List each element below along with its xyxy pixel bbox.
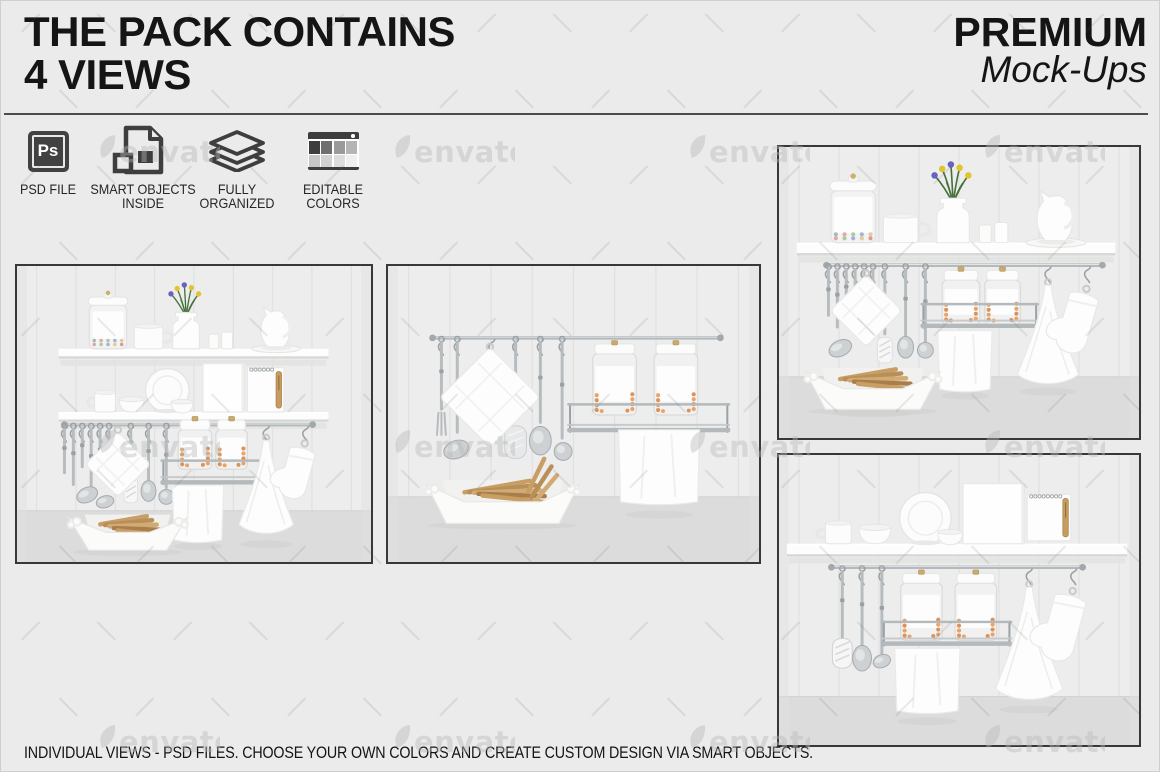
diagonal-mark xyxy=(629,13,648,32)
glass-jar xyxy=(942,267,980,325)
footer-caption: INDIVIDUAL VIEWS - PSD FILES. CHOOSE YOU… xyxy=(24,743,813,762)
jar-lid xyxy=(944,270,978,280)
mockup-scene-shelf-view xyxy=(779,147,1139,438)
jar-lid xyxy=(595,344,635,354)
color-swatches-icon xyxy=(308,132,359,170)
jar-lid xyxy=(987,270,1019,280)
diagonal-mark xyxy=(667,89,686,108)
diagonal-mark xyxy=(1047,89,1066,108)
blank-card xyxy=(203,364,245,412)
diagonal-mark xyxy=(439,697,458,716)
feature-editable-colors: EDITABLE COLORS xyxy=(267,124,399,210)
diagonal-mark xyxy=(895,89,914,108)
diagonal-mark xyxy=(705,621,724,640)
mockup-preview-3 xyxy=(777,145,1141,440)
hanging-towel xyxy=(895,648,960,713)
brand-block: PREMIUM Mock-Ups xyxy=(953,11,1147,89)
diagonal-mark xyxy=(249,621,268,640)
serving-spoon xyxy=(898,336,914,358)
diagonal-mark xyxy=(477,13,496,32)
floor xyxy=(779,697,1139,745)
serving-spoon xyxy=(853,645,872,671)
floor-shadow xyxy=(1000,706,1059,714)
title-line-2: 4 VIEWS xyxy=(24,53,455,96)
feature-label: EDITABLE COLORS xyxy=(274,182,393,210)
mockup-preview-4 xyxy=(777,453,1141,747)
diagonal-mark xyxy=(325,621,344,640)
diagonal-mark xyxy=(401,621,420,640)
spiral-notepad xyxy=(1027,494,1071,540)
blank-card xyxy=(963,484,1024,544)
diagonal-mark xyxy=(515,241,534,260)
diagonal-mark xyxy=(401,165,420,184)
color-swatch xyxy=(346,141,357,154)
jar-lid xyxy=(218,420,246,430)
floor-shadow xyxy=(1020,388,1075,396)
round-ladle xyxy=(554,443,572,461)
diagonal-mark xyxy=(1123,89,1142,108)
jar-label xyxy=(987,289,1018,315)
diagonal-mark xyxy=(477,165,496,184)
bowl xyxy=(859,524,891,544)
round-ladle xyxy=(159,489,174,504)
mockup-preview-2 xyxy=(386,264,761,564)
diagonal-mark xyxy=(59,697,78,716)
diagonal-mark xyxy=(743,89,762,108)
diagonal-mark xyxy=(363,697,382,716)
diagonal-mark xyxy=(97,621,116,640)
jar-label xyxy=(657,366,696,401)
diagonal-mark xyxy=(553,621,572,640)
glass-jar xyxy=(955,570,997,641)
glass-jar xyxy=(901,570,943,641)
diagonal-mark xyxy=(553,13,572,32)
jar-lid xyxy=(903,573,941,583)
diagonal-mark xyxy=(21,621,40,640)
bowl xyxy=(119,397,144,412)
serving-spoon xyxy=(529,426,551,455)
diagonal-mark xyxy=(59,241,78,260)
floor-shadow xyxy=(625,511,692,519)
mockup-scene-dishes-view xyxy=(779,455,1139,745)
diagonal-mark xyxy=(629,165,648,184)
grater xyxy=(877,337,892,363)
layers-stack-icon xyxy=(206,130,268,172)
diagonal-mark xyxy=(515,89,534,108)
diagonal-mark xyxy=(135,241,154,260)
diagonal-mark xyxy=(591,697,610,716)
glass-jar xyxy=(985,267,1021,325)
promo-page: { "header": { "title_line1": "THE PACK C… xyxy=(0,0,1160,772)
diagonal-mark xyxy=(629,621,648,640)
jar-label xyxy=(218,438,245,461)
page-title: THE PACK CONTAINS 4 VIEWS xyxy=(24,10,455,96)
spiral-notepad xyxy=(247,368,284,412)
jar-label xyxy=(595,366,634,401)
envato-watermark: envato xyxy=(391,132,515,177)
diagonal-mark xyxy=(553,165,572,184)
diagonal-mark xyxy=(667,697,686,716)
jar-lid xyxy=(180,420,210,430)
canister-jar xyxy=(830,173,876,242)
color-swatch xyxy=(321,141,332,154)
canister-jar xyxy=(88,291,127,349)
brand-mockups: Mock-Ups xyxy=(953,51,1147,89)
mockup-scene-front-view xyxy=(17,266,371,562)
bowl xyxy=(938,529,963,544)
diagonal-mark xyxy=(211,241,230,260)
bread-basket xyxy=(805,367,942,416)
diagonal-mark xyxy=(439,241,458,260)
diagonal-mark xyxy=(819,89,838,108)
title-line-1: THE PACK CONTAINS xyxy=(24,10,455,53)
jar-label xyxy=(945,289,978,315)
diagonal-mark xyxy=(591,241,610,260)
hanging-towel xyxy=(619,430,700,505)
photoshop-ps-glyph: Ps xyxy=(32,135,65,168)
slotted-spatula xyxy=(505,426,527,459)
diagonal-mark xyxy=(287,241,306,260)
diagonal-mark xyxy=(135,697,154,716)
floor-shadow xyxy=(898,717,957,725)
hanging-towel xyxy=(172,485,223,543)
floor-shadow xyxy=(174,542,221,550)
bowl xyxy=(171,400,193,413)
jar-lid xyxy=(656,344,696,354)
diagonal-mark xyxy=(363,241,382,260)
mockup-scene-closeup-view xyxy=(388,266,759,562)
diagonal-mark xyxy=(857,13,876,32)
serving-spoon xyxy=(141,481,156,502)
slotted-spatula xyxy=(832,638,852,668)
smart-objects-icon xyxy=(111,125,175,177)
color-swatch xyxy=(309,141,320,154)
jar-label xyxy=(181,438,210,461)
diagonal-mark xyxy=(515,697,534,716)
color-swatch xyxy=(334,141,345,154)
floor-shadow xyxy=(240,540,291,548)
diagonal-mark xyxy=(743,241,762,260)
jar-lid xyxy=(957,573,995,583)
diagonal-mark xyxy=(667,241,686,260)
diagonal-mark xyxy=(477,621,496,640)
diagonal-mark xyxy=(173,621,192,640)
header-divider xyxy=(4,113,1148,115)
palette-titlebar xyxy=(308,132,359,139)
floor-shadow xyxy=(941,392,988,400)
diagonal-mark xyxy=(287,697,306,716)
diagonal-mark xyxy=(211,697,230,716)
hanging-towel xyxy=(938,330,992,391)
diagonal-mark xyxy=(705,13,724,32)
diagonal-mark xyxy=(781,13,800,32)
diagonal-mark xyxy=(971,89,990,108)
diagonal-mark xyxy=(705,165,724,184)
brand-premium: PREMIUM xyxy=(953,11,1147,53)
diagonal-mark xyxy=(743,697,762,716)
diagonal-mark xyxy=(591,89,610,108)
photoshop-file-icon: Ps xyxy=(28,131,69,172)
diagonal-mark xyxy=(933,13,952,32)
svg-text:envato: envato xyxy=(414,135,515,169)
round-ladle xyxy=(917,342,933,358)
mockup-preview-1 xyxy=(15,264,373,564)
